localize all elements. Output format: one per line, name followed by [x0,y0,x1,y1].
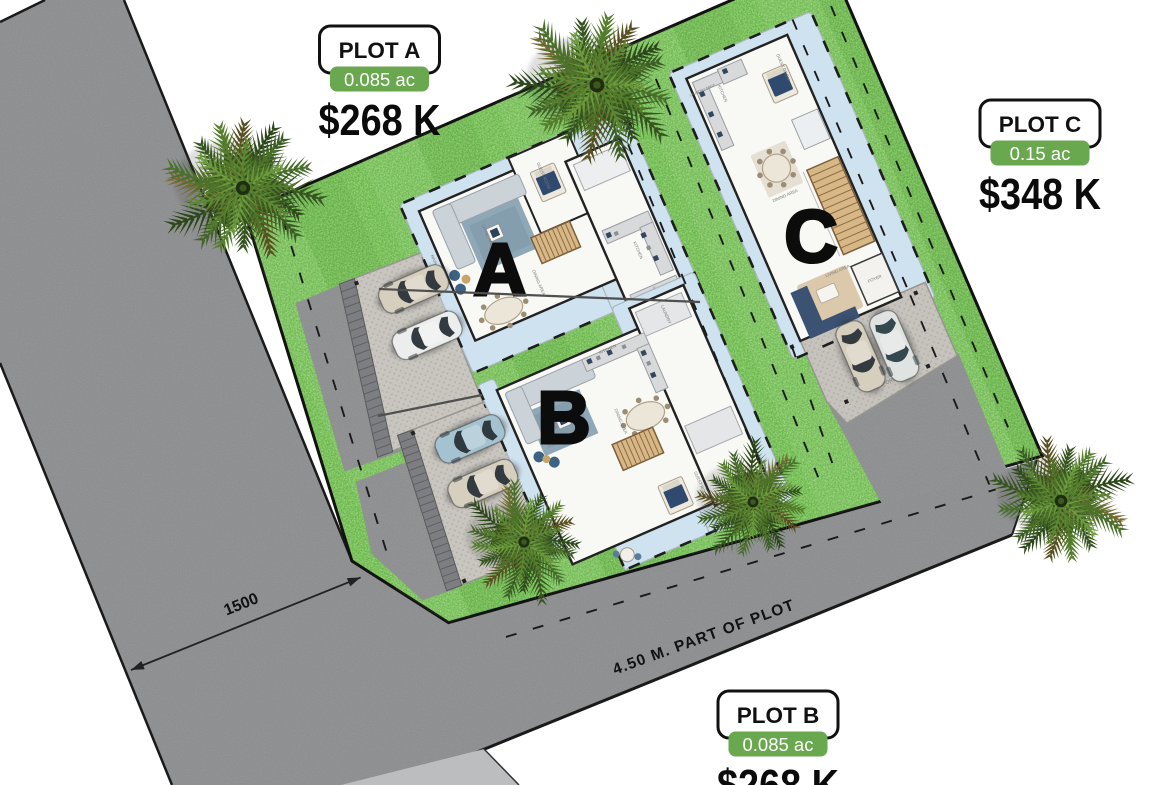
svg-text:A: A [473,228,526,311]
svg-text:$268 K: $268 K [717,761,839,785]
svg-text:0.085 ac: 0.085 ac [743,734,814,755]
svg-text:C: C [784,195,837,278]
svg-text:0.15 ac: 0.15 ac [1010,143,1071,164]
svg-text:$268 K: $268 K [319,96,441,145]
svg-text:PLOT B: PLOT B [737,703,820,728]
svg-text:$348 K: $348 K [979,170,1101,219]
svg-text:B: B [537,376,590,459]
svg-text:PLOT A: PLOT A [339,38,421,63]
svg-text:0.085 ac: 0.085 ac [344,69,415,90]
svg-text:PLOT C: PLOT C [999,112,1082,137]
